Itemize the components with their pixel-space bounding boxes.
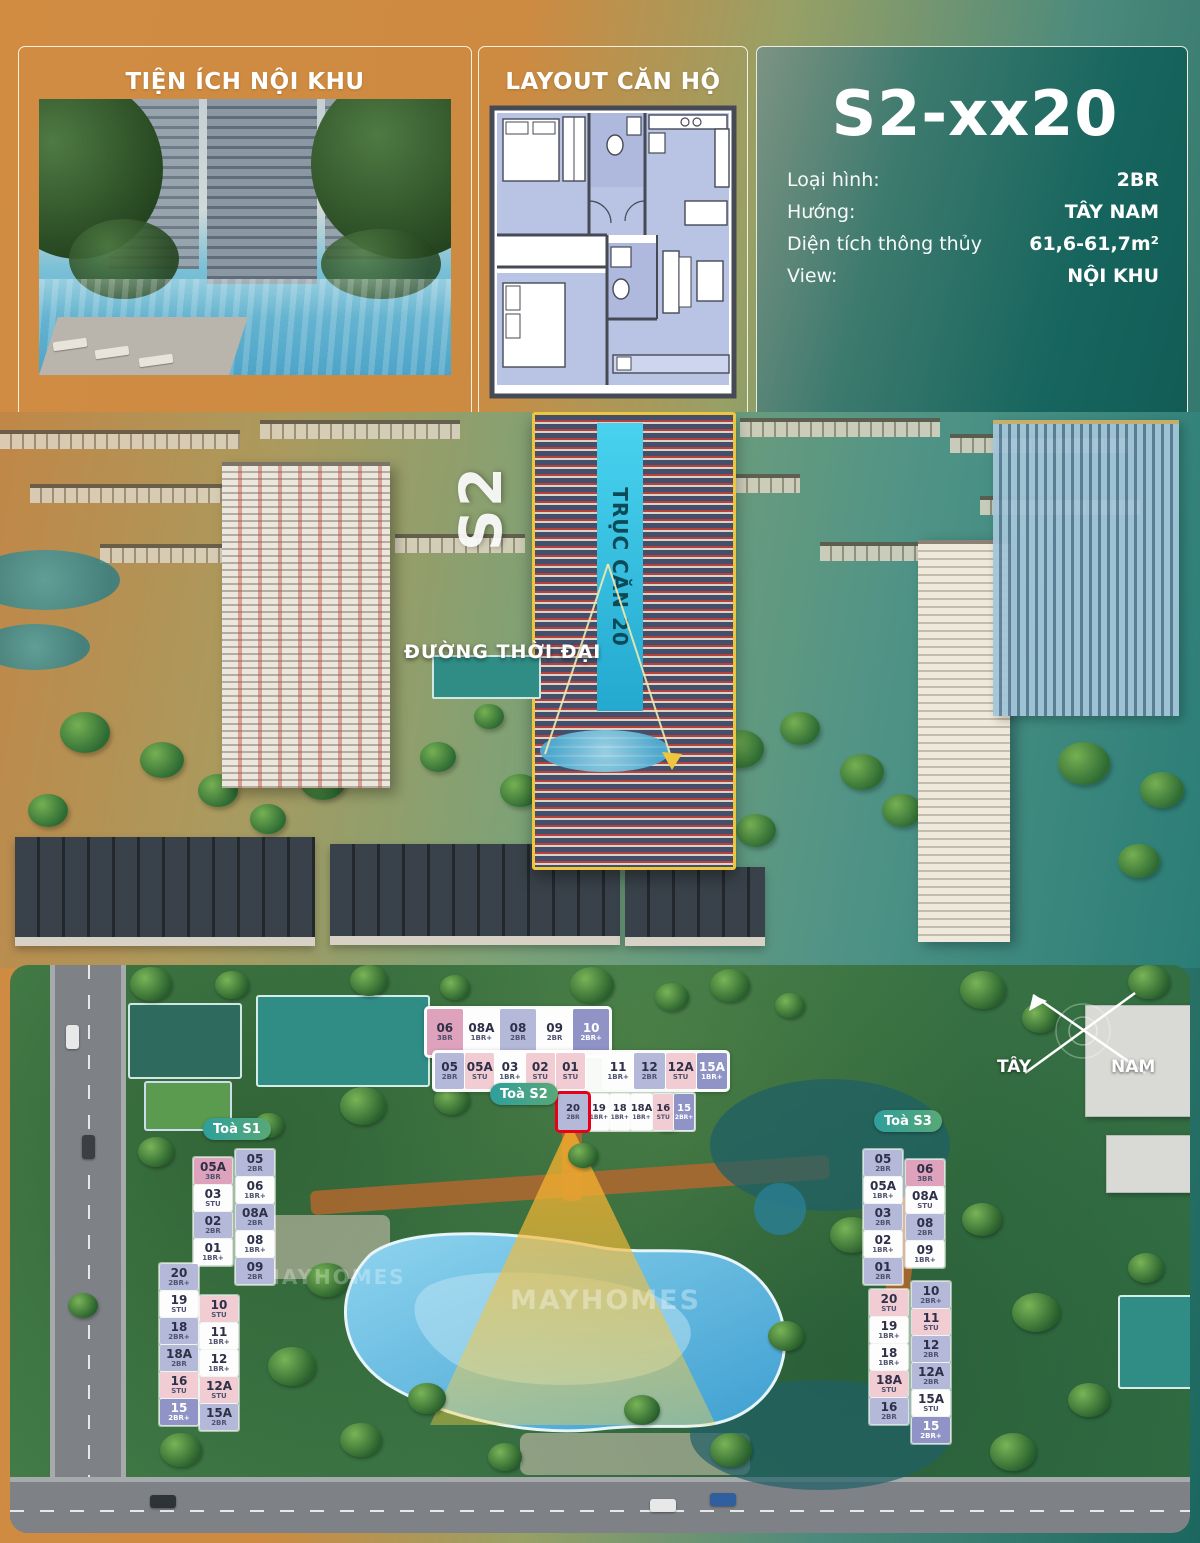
unit-cell-15: 152BR+ <box>160 1399 198 1425</box>
unit-cell-12A: 12ASTU <box>200 1377 238 1403</box>
unit-cell-05A: 05ASTU <box>465 1053 494 1089</box>
unit-cell-05A: 05A1BR+ <box>864 1177 902 1203</box>
spec-label: View: <box>787 265 837 287</box>
unit-cell-19: 191BR+ <box>870 1317 908 1343</box>
tower-s3-units: 102BR+11STU122BR12A2BR15ASTU152BR+ <box>910 1280 952 1445</box>
unit-cell-06: 063BR <box>906 1160 944 1186</box>
tower-s3-units: 20STU191BR+181BR+18ASTU162BR <box>868 1288 910 1426</box>
tower-s3-pill: Toà S3 <box>874 1110 942 1132</box>
unit-cell-02: 022BR <box>194 1212 232 1238</box>
unit-cell-19: 191BR+ <box>589 1094 609 1130</box>
unit-cell-06: 061BR+ <box>236 1177 274 1203</box>
spec-value: TÂY NAM <box>1065 201 1159 223</box>
unit-cell-12: 122BR <box>912 1336 950 1362</box>
unit-cell-10: 102BR+ <box>912 1282 950 1308</box>
unit-cell-15: 152BR+ <box>912 1417 950 1443</box>
tree <box>340 1087 386 1125</box>
unit-specs: Loại hình: 2BR Hướng: TÂY NAM Diện tích … <box>787 169 1159 297</box>
unit-cell-15A: 15A2BR <box>200 1404 238 1430</box>
compass-south-label: NAM <box>1111 1057 1155 1077</box>
tree <box>488 1443 522 1471</box>
tower-silhouette <box>207 99 317 284</box>
unit-cell-09: 092BR <box>236 1258 274 1284</box>
tree <box>655 983 689 1011</box>
tower-s1-units: 05A3BR03STU022BR011BR+ <box>192 1156 234 1267</box>
unit-code: S2-xx20 <box>793 77 1157 150</box>
unit-info-panel: S2-xx20 Loại hình: 2BR Hướng: TÂY NAM Di… <box>756 46 1188 422</box>
unit-cell-18A: 18ASTU <box>870 1371 908 1397</box>
unit-cell-11: 11STU <box>912 1309 950 1335</box>
unit-cell-12A: 12A2BR <box>912 1363 950 1389</box>
tower-s1-units: 10STU111BR+121BR+12ASTU15A2BR <box>198 1294 240 1432</box>
unit-cell-09: 091BR+ <box>906 1241 944 1267</box>
tree <box>408 1383 446 1414</box>
unit-cell-18: 181BR+ <box>610 1094 630 1130</box>
unit-row: 063BR08A1BR+082BR092BR102BR+ <box>427 1009 609 1055</box>
unit-cell-18: 182BR+ <box>160 1318 198 1344</box>
tower-s3-units: 063BR08ASTU082BR091BR+ <box>904 1158 946 1269</box>
unit-cell-05: 052BR <box>864 1150 902 1176</box>
spec-label: Diện tích thông thủy <box>787 233 982 255</box>
tree <box>215 971 249 999</box>
compass-west-label: TÂY <box>997 1057 1031 1077</box>
tree <box>624 1395 660 1425</box>
unit-cell-08: 082BR <box>500 1009 536 1055</box>
watermark: MAYHOMES <box>260 1265 406 1289</box>
watermark: MAYHOMES <box>510 1285 701 1316</box>
unit-cell-18A: 18A2BR <box>160 1345 198 1371</box>
unit-cell-12: 122BR <box>634 1053 664 1089</box>
tree <box>138 1137 174 1167</box>
tree <box>440 975 470 1000</box>
unit-cell-08A: 08ASTU <box>906 1187 944 1213</box>
layout-title: LAYOUT CĂN HỘ <box>479 69 747 95</box>
unit-cell-16: 16STU <box>160 1372 198 1398</box>
unit-cell-06: 063BR <box>427 1009 463 1055</box>
spec-value: 61,6-61,7m² <box>1029 233 1159 255</box>
unit-cell-01: 011BR+ <box>194 1239 232 1265</box>
spec-label: Loại hình: <box>787 169 880 191</box>
amenities-title: TIỆN ÍCH NỘI KHU <box>19 69 471 95</box>
tower-s2-units-row3: 202BR191BR+181BR+18A1BR+16STU152BR+ <box>556 1092 696 1132</box>
unit-cell-12: 121BR+ <box>200 1350 238 1376</box>
unit-cell-12A: 12ASTU <box>666 1053 696 1089</box>
unit-cell-18A: 18A1BR+ <box>631 1094 653 1130</box>
unit-cell-10: 102BR+ <box>573 1009 609 1055</box>
unit-cell-08: 081BR+ <box>236 1231 274 1257</box>
unit-row: 111BR+122BR12ASTU15A1BR+ <box>603 1053 727 1089</box>
tree <box>962 1203 1002 1236</box>
unit-cell-08A: 08A1BR+ <box>464 1009 500 1055</box>
unit-cell-16: 16STU <box>653 1094 673 1130</box>
unit-cell-10: 10STU <box>200 1296 238 1322</box>
unit-cell-05: 052BR <box>435 1053 464 1089</box>
unit-cell-16: 162BR <box>870 1398 908 1424</box>
tree <box>1012 1293 1060 1332</box>
site-plan: MAYHOMES MAYHOMES TÂY NAM 063BR08A1BR+08… <box>10 965 1190 1533</box>
unit-cell-15A: 15ASTU <box>912 1390 950 1416</box>
floor-plan <box>489 105 737 405</box>
tree <box>570 967 614 1003</box>
tower-s2-pill: Toà S2 <box>490 1083 558 1105</box>
tree <box>350 965 388 996</box>
unit-cell-01: 012BR <box>864 1258 902 1284</box>
brochure-page: TIỆN ÍCH NỘI KHU LAYOUT CĂN HỘ <box>0 0 1200 1543</box>
tree <box>268 1347 316 1386</box>
tower-s3-units: 052BR05A1BR+032BR021BR+012BR <box>862 1148 904 1286</box>
tree <box>768 1321 804 1351</box>
unit-cell-19: 19STU <box>160 1291 198 1317</box>
tree <box>568 1143 598 1168</box>
unit-cell-03: 032BR <box>864 1204 902 1230</box>
unit-cell-15: 152BR+ <box>674 1094 694 1130</box>
unit-cell-05: 052BR <box>236 1150 274 1176</box>
tree <box>990 1433 1036 1471</box>
unit-cell-20: 202BR <box>558 1094 588 1130</box>
spec-row-area: Diện tích thông thủy 61,6-61,7m² <box>787 233 1159 255</box>
unit-cell-20: 202BR+ <box>160 1264 198 1290</box>
tower-s1-units: 052BR061BR+08A2BR081BR+092BR <box>234 1148 276 1286</box>
layout-panel: LAYOUT CĂN HỘ <box>478 46 748 422</box>
unit-cell-05A: 05A3BR <box>194 1158 232 1184</box>
spec-row-direction: Hướng: TÂY NAM <box>787 201 1159 223</box>
tower-s1-pill: Toà S1 <box>203 1118 271 1140</box>
unit-cell-08A: 08A2BR <box>236 1204 274 1230</box>
spec-value: NỘI KHU <box>1067 265 1159 287</box>
spec-row-type: Loại hình: 2BR <box>787 169 1159 191</box>
amenities-photo <box>39 99 451 375</box>
unit-cell-08: 082BR <box>906 1214 944 1240</box>
axis-arrows <box>0 412 1200 968</box>
aerial-render: TRỤC CĂN 20 S2 ĐƯỜNG THỜI ĐẠI <box>0 412 1200 968</box>
unit-cell-18: 181BR+ <box>870 1344 908 1370</box>
unit-cell-11: 111BR+ <box>603 1053 633 1089</box>
unit-cell-02: 021BR+ <box>864 1231 902 1257</box>
tree <box>1128 1253 1164 1283</box>
tower-s1-units: 202BR+19STU182BR+18A2BR16STU152BR+ <box>158 1262 200 1427</box>
unit-cell-20: 20STU <box>870 1290 908 1316</box>
spec-value: 2BR <box>1117 169 1159 191</box>
tree <box>775 993 805 1018</box>
unit-cell-15A: 15A1BR+ <box>697 1053 727 1089</box>
tower-s2-units-row2: 052BR05ASTU031BR+02STU01STU 111BR+122BR1… <box>432 1050 730 1092</box>
spec-row-view: View: NỘI KHU <box>787 265 1159 287</box>
row-gap <box>585 1053 603 1089</box>
unit-cell-09: 092BR <box>537 1009 573 1055</box>
amenities-panel: TIỆN ÍCH NỘI KHU <box>18 46 472 422</box>
tree <box>710 969 750 1002</box>
compass-icon: TÂY NAM <box>995 987 1175 1087</box>
tree <box>68 1293 98 1318</box>
unit-cell-01: 01STU <box>556 1053 585 1089</box>
spec-label: Hướng: <box>787 201 855 223</box>
unit-cell-11: 111BR+ <box>200 1323 238 1349</box>
unit-cell-03: 03STU <box>194 1185 232 1211</box>
